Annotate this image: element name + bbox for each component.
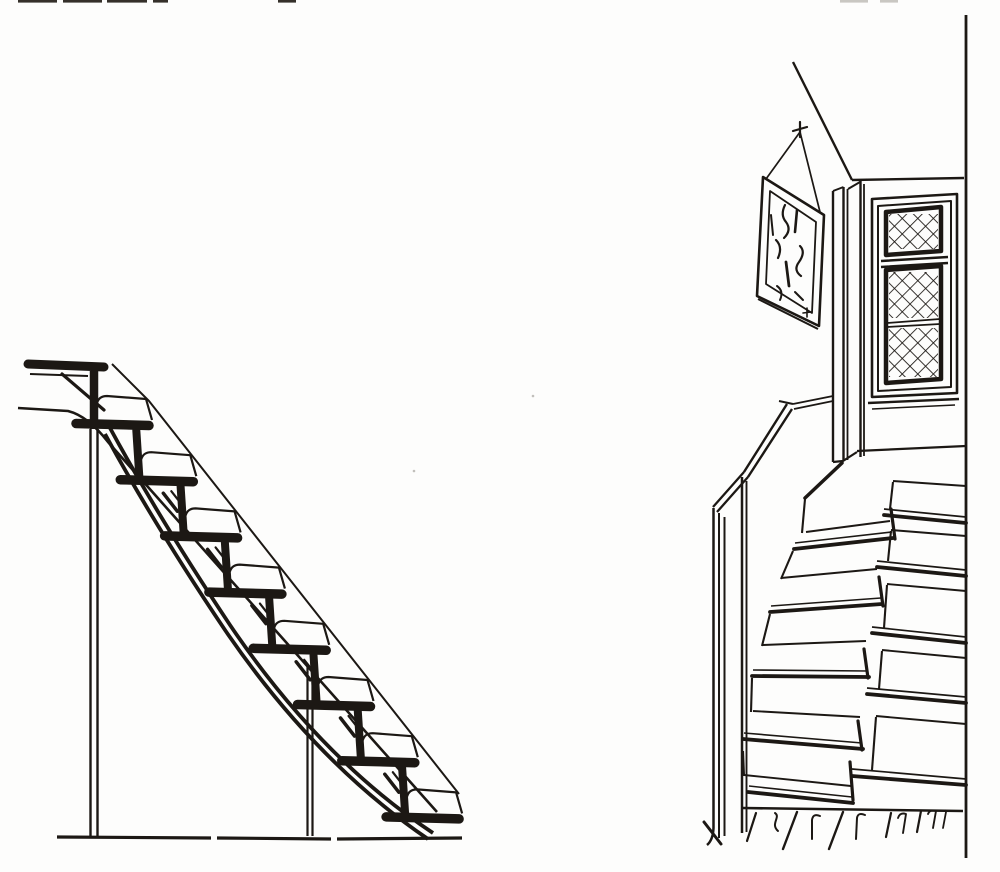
picture-frame-bottom-edge xyxy=(758,299,818,329)
window-sill-under-line xyxy=(872,405,955,409)
winder-right-end-cap xyxy=(850,762,853,800)
ground-line xyxy=(57,837,462,839)
wall-step-end-cap xyxy=(888,531,891,561)
tread-bar xyxy=(386,817,459,819)
trimmed-text-mark xyxy=(880,0,898,3)
wall-step-end-cap xyxy=(890,482,893,509)
riser-post xyxy=(136,430,139,476)
handrail-under-edge xyxy=(30,374,88,376)
tread-bar xyxy=(120,480,193,482)
picture-rail-line xyxy=(852,178,964,180)
tread-bar xyxy=(253,648,326,650)
wall-step-end-cap xyxy=(872,717,876,770)
lower-pane-upper-lattice xyxy=(889,272,938,318)
wall-step-back-edge xyxy=(876,716,966,724)
lower-sash-divider xyxy=(887,319,940,327)
landing-front-edge xyxy=(805,463,842,498)
trimmed-text-mark xyxy=(278,0,296,3)
tread-outline xyxy=(274,621,329,645)
wall-step-back-edge xyxy=(891,530,966,536)
tread-outline xyxy=(186,508,241,532)
wall-step-back-edge xyxy=(893,481,966,486)
wainscot-edge-1 xyxy=(707,508,714,845)
handrail-return-to-wall xyxy=(793,396,833,409)
riser-post xyxy=(225,543,228,589)
door-frame xyxy=(833,181,864,462)
winder-nosing xyxy=(748,792,853,803)
trimmed-text-mark xyxy=(107,0,147,3)
book-plate-page xyxy=(0,0,1000,872)
floor-and-back-stringer-line xyxy=(18,408,437,812)
floorboard-hatching xyxy=(747,810,946,849)
winder-right-end-cap xyxy=(864,649,868,678)
trimmed-text-mark xyxy=(153,0,168,3)
tread-outline xyxy=(97,396,152,420)
paper-specks xyxy=(413,395,535,473)
tread-bar xyxy=(209,592,282,594)
wall-step-back-edge xyxy=(882,650,966,658)
winder-nosing xyxy=(743,739,863,749)
window-sill-line xyxy=(868,399,959,403)
riser-post xyxy=(181,486,184,532)
ceiling-corner-line xyxy=(793,62,852,180)
left-staircase-figure xyxy=(18,364,462,839)
winder-back-edge xyxy=(763,641,866,645)
left-staircase-steps xyxy=(76,396,462,819)
paper-speck xyxy=(532,395,535,398)
wall-step-end-cap xyxy=(884,585,887,628)
winder-right-end-cap xyxy=(879,577,883,606)
tread-bar xyxy=(298,705,371,707)
door-frame-base xyxy=(833,452,857,462)
tread-outline xyxy=(141,452,196,476)
wall-step-back-edge xyxy=(887,584,966,591)
tread-outline xyxy=(230,565,285,589)
door-frame-top-caps xyxy=(833,182,860,191)
lower-pane-lower-lattice xyxy=(889,328,938,377)
tread-bar xyxy=(76,424,149,426)
landing-handrail xyxy=(28,364,104,367)
lattice-window xyxy=(868,194,959,409)
tread-bar xyxy=(165,536,238,538)
landing-back-edge xyxy=(857,446,966,451)
trimmed-text-mark xyxy=(63,0,102,3)
riser-post xyxy=(269,599,272,645)
hung-picture xyxy=(757,122,824,329)
tread-bar xyxy=(342,761,415,763)
winder-nose-top-edge xyxy=(753,670,868,671)
wall-steps-side-flight xyxy=(852,481,966,785)
upper-pane-lattice xyxy=(889,214,938,249)
trimmed-text-mark xyxy=(840,0,868,3)
winder-nosing xyxy=(794,538,893,549)
staircase-illustration-canvas xyxy=(0,0,1000,872)
picture-cord xyxy=(766,132,820,212)
winder-left-riser-edge xyxy=(762,614,770,646)
stair-landing xyxy=(805,446,966,498)
winder-back-edge xyxy=(744,775,851,786)
wall-step-end-cap xyxy=(879,651,882,689)
winder-back-edge xyxy=(753,711,860,717)
winder-back-edge xyxy=(806,521,890,532)
winder-left-riser-edge xyxy=(751,678,752,712)
riser-post xyxy=(402,767,405,813)
cropped-text-artifacts xyxy=(18,0,898,3)
winder-left-riser-edge xyxy=(802,499,805,533)
winder-nosing xyxy=(752,676,869,677)
right-staircase-figure xyxy=(704,15,966,858)
trimmed-text-mark xyxy=(18,0,57,3)
winder-back-edge xyxy=(781,569,877,578)
floor xyxy=(743,808,963,849)
winder-right-end-cap xyxy=(858,721,862,750)
riser-post xyxy=(358,711,361,757)
pitch-line xyxy=(112,364,459,794)
winder-left-riser-edge xyxy=(781,551,793,579)
riser-post xyxy=(314,655,317,701)
handrail-descending xyxy=(744,404,792,477)
paper-speck xyxy=(413,470,416,473)
wall-step-nosing xyxy=(872,633,966,643)
picture-frame-inner xyxy=(766,191,816,313)
winder-left-riser-edge xyxy=(743,751,744,776)
